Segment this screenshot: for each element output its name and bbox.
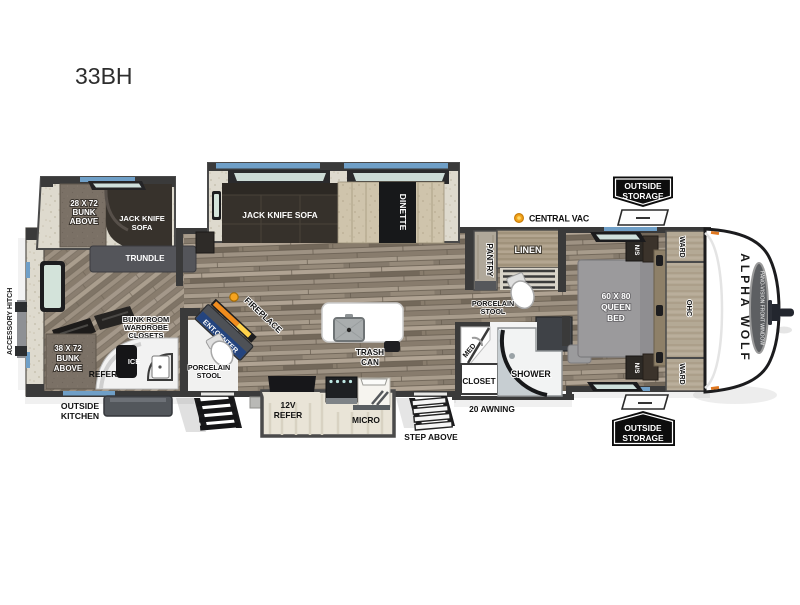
svg-text:60 X 80: 60 X 80 — [602, 291, 631, 301]
svg-text:REFER: REFER — [89, 369, 117, 379]
svg-text:BUNK: BUNK — [56, 354, 79, 363]
svg-text:SHOWER: SHOWER — [511, 369, 551, 379]
svg-text:ABOVE: ABOVE — [70, 217, 99, 226]
svg-text:REFER: REFER — [274, 410, 302, 420]
svg-text:ABOVE: ABOVE — [54, 364, 83, 373]
svg-text:TRUNDLE: TRUNDLE — [125, 254, 165, 263]
svg-text:BED: BED — [607, 313, 625, 323]
svg-text:OHC: OHC — [685, 300, 694, 317]
svg-text:OUTSIDE: OUTSIDE — [61, 401, 99, 411]
svg-text:WARD: WARD — [678, 363, 685, 384]
svg-text:STEP ABOVE: STEP ABOVE — [404, 432, 458, 442]
svg-text:MICRO: MICRO — [352, 415, 380, 425]
svg-text:BUNK: BUNK — [72, 208, 95, 217]
svg-text:OUTSIDE: OUTSIDE — [624, 181, 662, 191]
svg-text:PANO-VISION FRONT WINDOW: PANO-VISION FRONT WINDOW — [759, 271, 765, 346]
svg-text:CENTRAL VAC: CENTRAL VAC — [529, 214, 590, 224]
svg-text:ACCESSORY HITCH: ACCESSORY HITCH — [7, 288, 14, 355]
svg-text:PANTRY: PANTRY — [485, 243, 495, 277]
svg-text:12V: 12V — [281, 400, 296, 410]
svg-text:N/S: N/S — [633, 245, 640, 256]
svg-text:WARD: WARD — [678, 236, 685, 257]
svg-text:CAN: CAN — [361, 358, 379, 367]
svg-text:28 X 72: 28 X 72 — [70, 199, 98, 208]
svg-text:STOOL: STOOL — [481, 307, 506, 316]
svg-text:STORAGE: STORAGE — [622, 433, 664, 443]
svg-text:ICE: ICE — [128, 357, 140, 366]
svg-text:QUEEN: QUEEN — [601, 302, 631, 312]
svg-text:33BH: 33BH — [75, 63, 133, 89]
svg-text:DINETTE: DINETTE — [398, 194, 408, 231]
svg-text:OUTSIDE: OUTSIDE — [624, 423, 662, 433]
svg-text:STOOL: STOOL — [197, 371, 222, 380]
svg-text:N/S: N/S — [633, 363, 640, 374]
svg-text:KITCHEN: KITCHEN — [61, 411, 99, 421]
svg-text:JACK KNIFE: JACK KNIFE — [119, 214, 165, 223]
svg-text:SOFA: SOFA — [132, 223, 153, 232]
svg-text:20 AWNING: 20 AWNING — [469, 404, 515, 414]
svg-text:CLOSET: CLOSET — [462, 377, 495, 386]
svg-text:38 X 72: 38 X 72 — [54, 344, 82, 353]
svg-text:TRASH: TRASH — [356, 348, 384, 357]
svg-text:STORAGE: STORAGE — [622, 191, 664, 201]
svg-text:LINEN: LINEN — [515, 245, 542, 255]
svg-text:JACK KNIFE SOFA: JACK KNIFE SOFA — [242, 210, 317, 220]
